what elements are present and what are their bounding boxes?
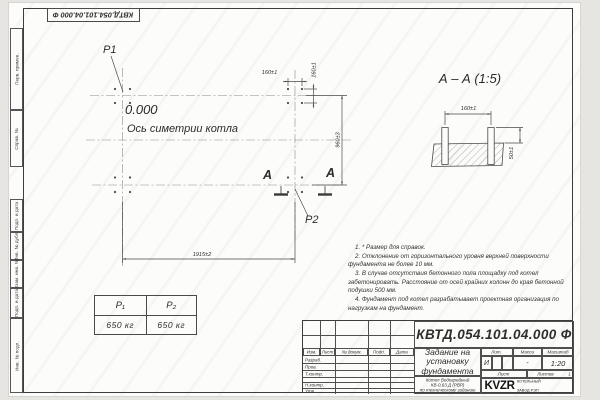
axis-of-symmetry-label: Ось симетрии котла	[127, 123, 238, 135]
note-3: 3. В случае отсутствия бетонного пола пл…	[348, 270, 574, 296]
doc-number: КВТД.054.101.04.000 Ф	[416, 327, 571, 342]
scale-value-cell: 1:20	[542, 356, 574, 370]
anchor-stud-right	[488, 128, 494, 165]
section-letter-right: А	[326, 166, 335, 180]
kvzr-coil-icon	[482, 380, 483, 392]
col-ndokum: № докум.	[335, 348, 368, 356]
anchor-stud-left	[442, 128, 448, 165]
format-label: Формат А3	[515, 393, 575, 400]
load-table-value-p2: 650 кг	[146, 315, 197, 334]
section-dim-bolt-spacing: 160±1	[446, 103, 490, 113]
note-4: 4. Фундамент под котел разрабатывает про…	[348, 296, 574, 313]
logo-cell: KVZR КОТЕЛЬНЫЙ ЗАВОД РЭП	[481, 378, 574, 394]
product-line: по техническому заданию	[420, 388, 476, 393]
notes-block: 1. * Размер для справок. 2. Отклонение о…	[348, 244, 574, 313]
elevation-label: 0.000	[125, 102, 158, 117]
drawing-title-cell: Задание на установку фундамента	[414, 348, 481, 376]
dim-row-spacing: 960±3	[330, 122, 344, 158]
load-table: Р₁ Р₂ 650 кг 650 кг	[94, 295, 197, 335]
drawing-canvas: Перв. примен. Справ. № Подп. и дата Инв.…	[0, 0, 600, 400]
row-utv: Утв.	[303, 388, 335, 394]
lit-cell-2	[492, 356, 502, 370]
load-table-header-p2: Р₂	[146, 296, 197, 315]
section-dim-protrusion: 50±1	[504, 142, 518, 164]
row-prov: Пров.	[303, 363, 335, 370]
foundation-section-geometry	[432, 128, 504, 167]
lit-cell-3	[502, 356, 513, 370]
mass-value-cell: -	[513, 356, 542, 370]
doc-number-cell: КВТД.054.101.04.000 Ф	[414, 321, 574, 348]
col-izm: Изм.	[303, 348, 320, 356]
title-block: КВТД.054.101.04.000 Ф Изм. Лист № докум.…	[302, 320, 573, 393]
plan-centerlines	[86, 68, 352, 266]
plan-point2-label: P2	[305, 214, 318, 226]
note-2: 2. Отклонение от горизонтального уровня …	[348, 253, 574, 270]
load-table-header-p1: Р₁	[95, 296, 146, 315]
dim-bolt-spacing-v: 160±1	[306, 56, 320, 84]
lit-header: Лит.	[481, 348, 513, 356]
section-plane-marks	[274, 186, 332, 195]
note-1: 1. * Размер для справок.	[348, 244, 574, 253]
load-table-value-p1: 650 кг	[95, 315, 146, 334]
logo-text: KVZR	[485, 380, 515, 392]
mass-header: Масса	[513, 348, 542, 356]
section-letter-left: А	[263, 168, 272, 182]
section-view-title: А – А (1:5)	[428, 71, 512, 86]
col-data: Дата	[390, 348, 414, 356]
grid-line	[303, 335, 414, 336]
grid-line	[303, 377, 414, 378]
lit-value-cell: И	[481, 356, 492, 370]
product-name-cell: Котел Водогрейный КВ-0,63 Д (РВР) по тех…	[414, 376, 481, 394]
row-tkontr: Т.контр.	[303, 370, 335, 377]
scale-header: Масштаб	[542, 348, 574, 356]
drawing-title-line: фундамента	[421, 367, 473, 376]
dim-bolt-spacing-h: 160±1	[252, 67, 286, 77]
dim-axis-spacing: 1915±2	[180, 249, 224, 259]
col-podp: Подп.	[368, 348, 390, 356]
logo-caption-line: КОТЕЛЬНЫЙ	[517, 379, 541, 383]
leader-lines	[111, 56, 308, 216]
col-list: Лист	[320, 348, 335, 356]
row-razrab: Разраб.	[303, 356, 335, 363]
plan-point1-label: P1	[103, 44, 116, 56]
